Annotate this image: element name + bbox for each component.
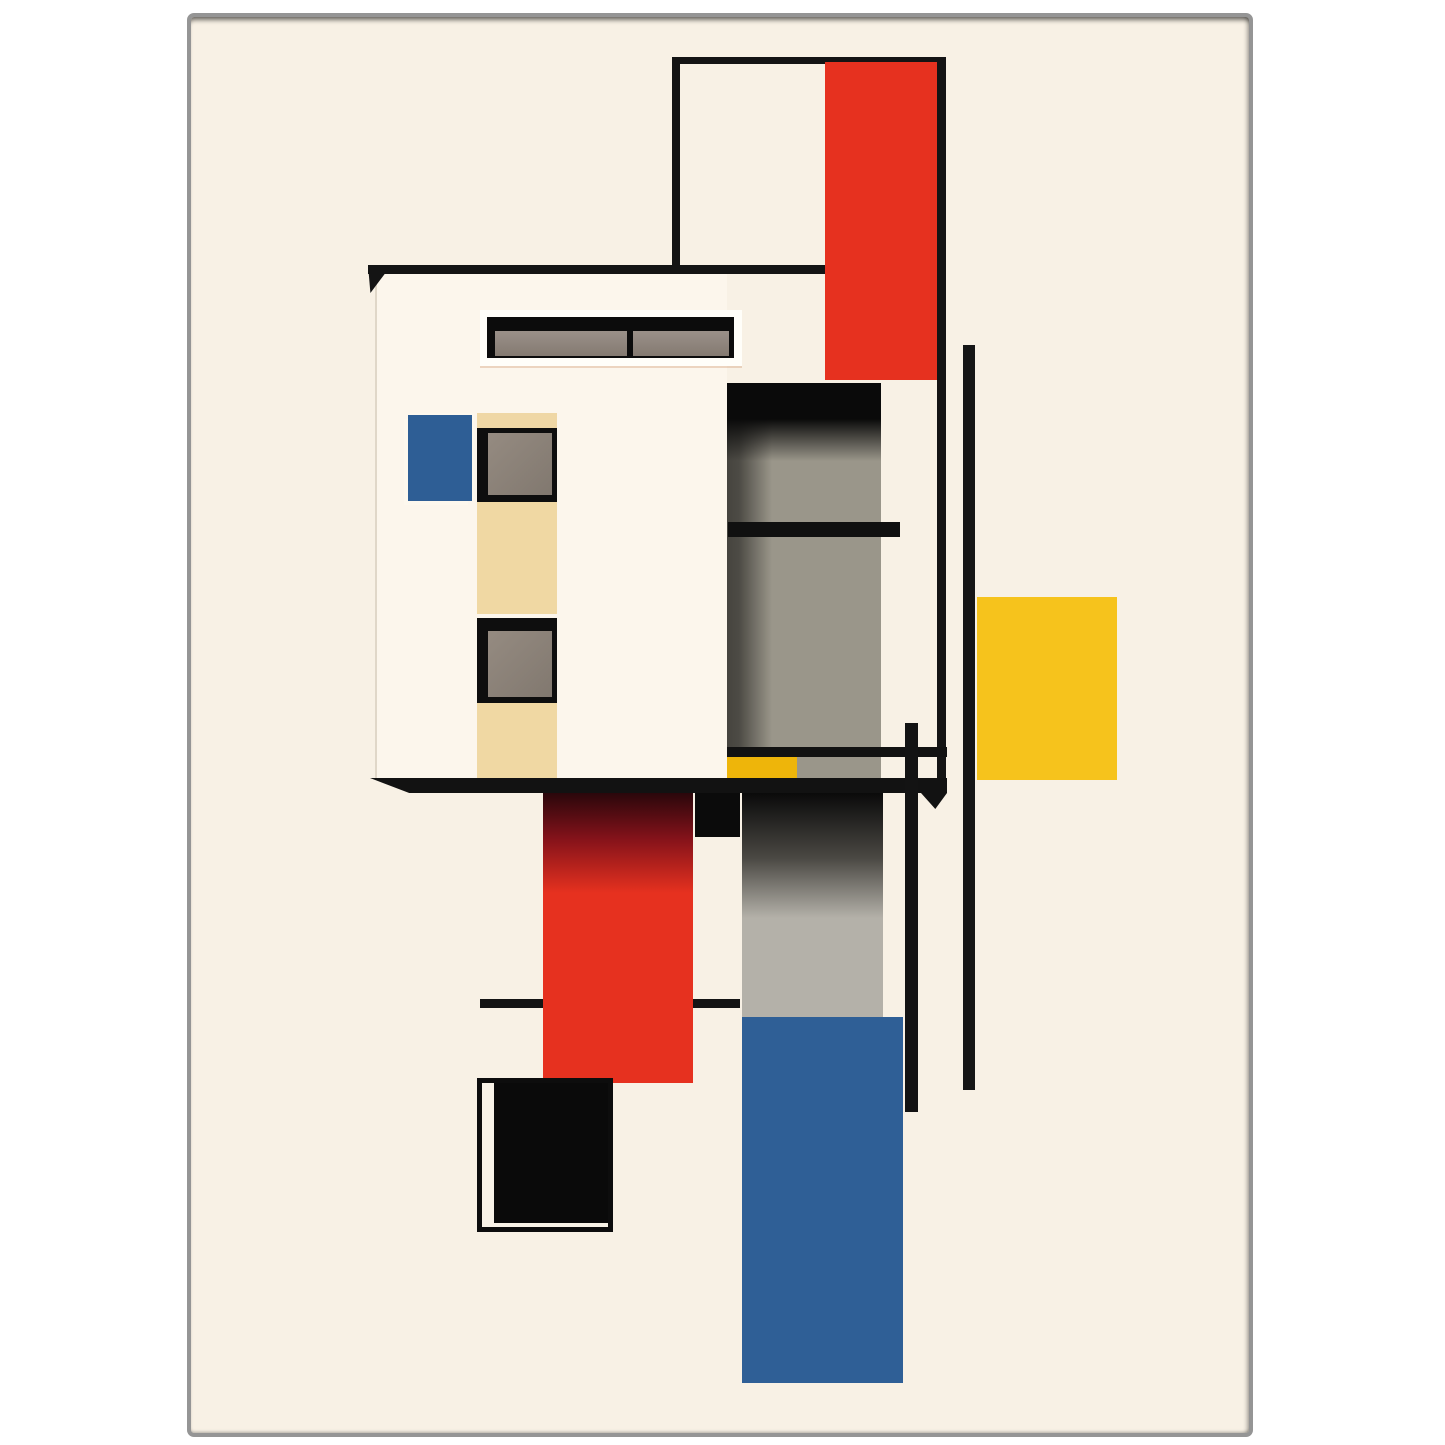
tower-outline-right <box>937 57 946 778</box>
tower-outline-left <box>672 57 680 273</box>
yellow-square <box>977 597 1117 780</box>
blue-column <box>742 1017 903 1383</box>
tan-column-upper <box>477 502 557 614</box>
gray-panel-upper <box>727 383 881 778</box>
red-column-lower <box>543 793 693 1083</box>
gray-panel-lower <box>742 793 883 1017</box>
tower-red-column <box>825 62 937 380</box>
poster-artwork-stage <box>0 0 1445 1445</box>
open-box-fill <box>494 1083 608 1223</box>
yellow-ledge <box>727 757 797 778</box>
tan-column-lower <box>477 703 557 778</box>
tall-thin-line <box>963 345 975 1090</box>
balcony-slab <box>370 778 947 793</box>
roof-line <box>368 265 825 274</box>
blue-window <box>408 415 472 501</box>
window1-pane <box>488 433 552 495</box>
black-block <box>695 793 740 837</box>
window2-pane <box>488 631 552 697</box>
clerestory-pane-left <box>495 331 627 356</box>
gray-panel-shelf <box>728 522 900 537</box>
vertical-post <box>905 723 918 1112</box>
clerestory-pane-right <box>633 331 729 356</box>
